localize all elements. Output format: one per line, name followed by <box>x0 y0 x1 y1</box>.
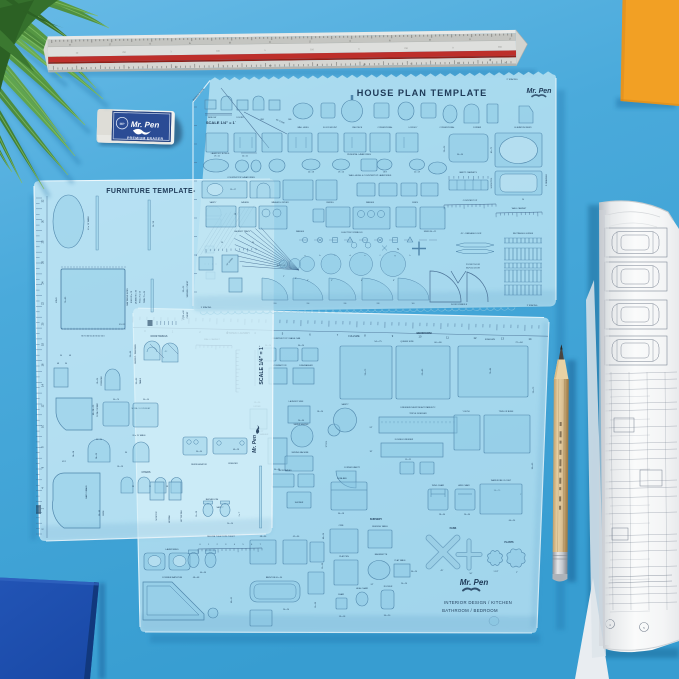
svg-text:F. SPALDING: F. SPALDING <box>545 174 548 187</box>
svg-text:Mr. Pen: Mr. Pen <box>252 435 258 453</box>
svg-text:28 x 30: 28 x 30 <box>439 514 445 516</box>
svg-text:SINKS 30 x 21: SINKS 30 x 21 <box>424 231 436 233</box>
svg-text:a: a <box>305 255 306 257</box>
svg-text:FREEZER: FREEZER <box>228 463 238 465</box>
svg-text:20 x 30: 20 x 30 <box>298 420 304 422</box>
svg-text:18 x 34: 18 x 34 <box>97 377 99 384</box>
svg-text:48 x 34 x 20: 48 x 34 x 20 <box>93 405 95 415</box>
svg-text:KING: KING <box>56 297 58 303</box>
svg-text:HOUSE PLAN TEMPLATE: HOUSE PLAN TEMPLATE <box>357 88 488 98</box>
svg-text:22 x 19: 22 x 19 <box>414 172 420 174</box>
svg-text:19 x 16: 19 x 16 <box>338 172 344 174</box>
svg-text:36 x 30: 36 x 30 <box>196 451 202 453</box>
svg-text:20 x 20: 20 x 20 <box>283 609 289 611</box>
svg-text:CHAIR: CHAIR <box>338 593 345 596</box>
svg-text:TRIPLE DRESSER: TRIPLE DRESSER <box>409 413 427 415</box>
svg-text:FULLSIZE: FULLSIZE <box>348 335 360 338</box>
svg-text:3: 3 <box>225 544 226 546</box>
svg-text:COUNTER TOP / BASE CAB: COUNTER TOP / BASE CAB <box>272 337 301 340</box>
svg-text:26 x 30: 26 x 30 <box>464 514 470 516</box>
svg-text:13 x 18: 13 x 18 <box>339 616 346 618</box>
svg-text:24": 24" <box>371 584 374 586</box>
svg-text:2: 2 <box>217 544 218 546</box>
svg-text:PLAY PEN: PLAY PEN <box>339 555 349 558</box>
svg-text:ARM CHAIR: ARM CHAIR <box>458 484 470 487</box>
svg-text:36 x 36: 36 x 36 <box>444 145 446 152</box>
svg-text:3" SPACING: 3" SPACING <box>527 304 538 307</box>
svg-text:SOFA CORNER: SOFA CORNER <box>96 403 99 417</box>
svg-text:WHIRLPOOL: WHIRLPOOL <box>491 178 493 189</box>
svg-text:15 x 21: 15 x 21 <box>405 459 411 461</box>
svg-text:2-6: 2-6 <box>344 303 347 305</box>
svg-text:44 x 36: 44 x 36 <box>200 572 206 574</box>
svg-text:COUNTER TOP: COUNTER TOP <box>463 200 478 202</box>
svg-text:ELEVATION VIEWS: ELEVATION VIEWS <box>515 126 533 129</box>
svg-text:CHEST: CHEST <box>187 311 189 319</box>
svg-text:24 x 24: 24 x 24 <box>73 451 75 457</box>
svg-text:9 10 12: 9 10 12 <box>119 324 125 326</box>
svg-text:30 x 20: 30 x 20 <box>384 615 391 617</box>
svg-text:WALL CABINET: WALL CABINET <box>512 207 527 210</box>
svg-text:18 x 28: 18 x 28 <box>117 466 123 468</box>
svg-text:45° - PASSAGE DOOR: 45° - PASSAGE DOOR <box>461 232 482 235</box>
svg-text:43 x 70 TABLE: 43 x 70 TABLE <box>87 215 90 229</box>
svg-text:KEYPAD: KEYPAD <box>168 515 171 523</box>
svg-text:WARDROBE CLOSET: WARDROBE CLOSET <box>491 479 512 482</box>
svg-text:DISHWASHER: DISHWASHER <box>299 364 313 367</box>
svg-text:LAVATORIES: LAVATORIES <box>165 548 179 551</box>
svg-text:DAVENS: DAVENS <box>241 201 249 204</box>
svg-text:NURSERY: NURSERY <box>370 518 382 521</box>
svg-text:RECTANGLE GUIDES: RECTANGLE GUIDES <box>513 232 534 235</box>
svg-text:72 x 84: 72 x 84 <box>490 367 492 374</box>
svg-text:54 x 75: 54 x 75 <box>374 341 382 343</box>
svg-text:h: h <box>410 255 411 257</box>
svg-text:(?)30 x 42: (?)30 x 42 <box>183 310 185 320</box>
svg-text:PLAY TABLE: PLAY TABLE <box>395 559 407 562</box>
svg-text:MONITOR: MONITOR <box>156 511 158 521</box>
svg-text:DOOR SYMBOLS: DOOR SYMBOLS <box>451 304 468 306</box>
svg-text:24 x 26: 24 x 26 <box>136 377 138 384</box>
svg-text:30 x 75: 30 x 75 <box>533 386 535 393</box>
svg-text:⚜: ⚜ <box>489 58 492 62</box>
svg-text:CONVENTIONAL: CONVENTIONAL <box>378 126 393 129</box>
svg-text:22 x 36: 22 x 36 <box>183 285 185 292</box>
svg-text:1 1/2": 1 1/2" <box>494 571 499 573</box>
svg-text:DELUXE TOILET STD.TOILET: DELUXE TOILET STD.TOILET <box>207 536 235 538</box>
svg-text:DOORS: DOORS <box>237 117 245 119</box>
svg-text:CONSOLE: CONSOLE <box>101 375 103 385</box>
svg-text:YOUTH: YOUTH <box>463 411 471 413</box>
svg-text:FLOOR MOUNT: FLOOR MOUNT <box>323 127 338 129</box>
svg-text:BATHROOM: BATHROOM <box>206 498 219 501</box>
svg-text:76 x 80: 76 x 80 <box>65 296 67 303</box>
svg-text:INTERIOR DESIGN / KITCHEN: INTERIOR DESIGN / KITCHEN <box>444 600 512 605</box>
svg-text:80 70 60 50 40 30: 80 70 60 50 40 30 20 10 0 <box>81 336 105 338</box>
svg-text:BASSINETTE: BASSINETTE <box>375 553 388 556</box>
svg-text:48 x 36: 48 x 36 <box>260 536 267 538</box>
svg-text:24 x 60: 24 x 60 <box>532 462 534 469</box>
svg-text:5: 5 <box>242 544 243 546</box>
svg-text:FANS: FANS <box>450 527 457 530</box>
svg-text:4: 4 <box>234 544 235 546</box>
svg-text:ELECTRIC SYMBOLS: ELECTRIC SYMBOLS <box>342 232 364 234</box>
svg-text:CORNER: CORNER <box>473 127 482 129</box>
svg-text:24: 24 <box>522 199 524 201</box>
svg-text:WALL-HUNG & COUNTERTOP LAVATOR: WALL-HUNG & COUNTERTOP LAVATORIES <box>349 174 392 177</box>
svg-text:48 x 26: 48 x 26 <box>323 533 325 539</box>
svg-text:72 x 84: 72 x 84 <box>515 342 523 344</box>
svg-text:48 x 48: 48 x 48 <box>193 577 200 579</box>
svg-text:FURNITURE TEMPLATE-: FURNITURE TEMPLATE- <box>106 188 196 195</box>
svg-text:POCKET DOOR: POCKET DOOR <box>466 264 481 266</box>
svg-text:DBL: DBL <box>288 119 292 121</box>
svg-text:30 x 60: 30 x 60 <box>99 510 101 516</box>
svg-text:60 x 80: 60 x 80 <box>434 342 442 344</box>
svg-text:VANITY: VANITY <box>210 201 217 204</box>
svg-text:ROCKER: ROCKER <box>384 586 393 588</box>
svg-text:STOOL: STOOL <box>326 441 328 447</box>
svg-text:CRIB: CRIB <box>339 525 344 527</box>
svg-text:BEDROOM: BEDROOM <box>416 331 432 335</box>
svg-text:FEEDING TABLE: FEEDING TABLE <box>372 525 388 528</box>
svg-text:3-0: 3-0 <box>412 303 415 305</box>
svg-text:WINDOW: WINDOW <box>208 117 217 119</box>
svg-text:SEWING MACHINE: SEWING MACHINE <box>292 451 310 454</box>
svg-text:SERVER / CHEST: SERVER / CHEST <box>187 280 189 297</box>
svg-text:RANGES: RANGES <box>366 201 375 204</box>
svg-text:6: 6 <box>251 544 252 546</box>
svg-text:24 x 20: 24 x 20 <box>96 453 98 459</box>
svg-text:45": 45" <box>441 570 444 572</box>
svg-text:BABY GRAND: BABY GRAND <box>85 485 88 499</box>
svg-text:30: 30 <box>235 213 237 215</box>
svg-text:WALL HUNG: WALL HUNG <box>297 126 309 129</box>
svg-text:56": 56" <box>470 573 473 575</box>
svg-text:c: c <box>335 255 336 257</box>
svg-text:30: 30 <box>252 242 254 244</box>
svg-text:HIGH CHAIR: HIGH CHAIR <box>356 587 368 590</box>
svg-text:24": 24" <box>370 427 373 429</box>
svg-text:23: 23 <box>132 486 134 488</box>
svg-text:60 x 32: 60 x 32 <box>231 597 233 603</box>
svg-text:REFRIGERATOR: REFRIGERATOR <box>191 463 207 466</box>
svg-text:KINGSIZE: KINGSIZE <box>485 339 496 341</box>
svg-text:24 x 21: 24 x 21 <box>242 156 248 158</box>
svg-text:DOOR SWINGS: DOOR SWINGS <box>151 336 168 338</box>
svg-text:WM: WM <box>260 119 264 121</box>
svg-text:42 x 36: 42 x 36 <box>293 536 300 538</box>
svg-text:SINKS: SINKS <box>412 202 418 204</box>
svg-text:3" SPACING: 3" SPACING <box>506 78 518 81</box>
svg-text:54 x 75: 54 x 75 <box>365 368 367 375</box>
svg-text:24: 24 <box>221 242 223 244</box>
svg-text:20 x 18: 20 x 18 <box>308 172 314 174</box>
svg-text:15 x 30: 15 x 30 <box>322 563 324 569</box>
svg-text:26 x 19 TABLE: 26 x 19 TABLE <box>132 434 146 437</box>
svg-text:FULL 75 x 54: FULL 75 x 54 <box>140 290 142 303</box>
svg-text:42 x 72: 42 x 72 <box>491 147 493 153</box>
svg-text:1: 1 <box>208 544 209 546</box>
svg-text:2-0: 2-0 <box>274 303 277 305</box>
svg-text:LAUNDRY TRAYS: LAUNDRY TRAYS <box>234 230 250 233</box>
svg-text:KING 80 x 78: KING 80 x 78 <box>131 290 133 303</box>
svg-text:S: S <box>397 247 399 251</box>
svg-text:b: b <box>320 255 321 257</box>
svg-text:48 x 28: 48 x 28 <box>233 449 239 451</box>
svg-text:34: 34 <box>60 355 62 357</box>
svg-text:34 x 64: 34 x 64 <box>130 350 132 357</box>
svg-text:g: g <box>395 255 396 257</box>
svg-text:18": 18" <box>370 451 373 453</box>
svg-text:TWIN 75 x 39: TWIN 75 x 39 <box>144 290 146 303</box>
svg-text:7: 7 <box>260 544 261 546</box>
svg-text:36 x 36: 36 x 36 <box>457 154 463 156</box>
svg-text:18: 18 <box>166 486 168 488</box>
svg-text:LOW BOY: LOW BOY <box>409 127 419 129</box>
svg-text:36 x 18: 36 x 18 <box>338 513 344 515</box>
svg-text:WING CHAIR: WING CHAIR <box>432 484 445 487</box>
svg-text:19 x 21: 19 x 21 <box>214 156 220 158</box>
svg-text:TABLE: TABLE <box>139 377 142 384</box>
svg-text:LETTER FILE: LETTER FILE <box>181 509 183 522</box>
svg-text:BI-FOLD DOOR: BI-FOLD DOOR <box>466 268 480 270</box>
svg-text:Mr. Pen: Mr. Pen <box>460 578 489 587</box>
svg-text:DESK: DESK <box>103 510 105 516</box>
svg-text:COUNTERTOP LAVATORIES: COUNTERTOP LAVATORIES <box>227 176 255 179</box>
svg-text:REFRIG: REFRIG <box>326 202 334 204</box>
svg-text:MATTRESS SIZES: MATTRESS SIZES <box>126 288 129 306</box>
svg-text:18 x 20: 18 x 20 <box>317 411 323 413</box>
svg-text:SOFA BED: SOFA BED <box>337 477 347 480</box>
svg-text:LAUNDRY SINK: LAUNDRY SINK <box>289 400 304 403</box>
svg-text:2 x 7´: 2 x 7´ <box>238 511 241 516</box>
svg-text:BUFFET / DRESSER: BUFFET / DRESSER <box>135 344 137 364</box>
svg-text:0: 0 <box>199 544 200 546</box>
svg-text:SCALE 1/4" = 1´: SCALE 1/4" = 1´ <box>206 120 237 125</box>
svg-text:CORNER VANITY: CORNER VANITY <box>344 466 361 469</box>
svg-text:BATHTUB 60 x 30: BATHTUB 60 x 30 <box>266 576 283 579</box>
svg-text:MICROWAVES: MICROWAVES <box>279 469 293 472</box>
svg-text:CORNER BATHTUB: CORNER BATHTUB <box>162 576 183 579</box>
svg-text:30 x 24: 30 x 24 <box>298 345 304 347</box>
svg-text:34: 34 <box>65 363 67 365</box>
svg-text:15 x 30: 15 x 30 <box>315 602 317 608</box>
svg-text:RANGES: RANGES <box>296 230 305 233</box>
svg-text:48: 48 <box>69 355 71 357</box>
svg-text:20 x 26: 20 x 26 <box>227 523 233 525</box>
svg-text:34 x 54: 34 x 54 <box>143 399 149 401</box>
svg-text:34 x 76: 34 x 76 <box>113 399 119 401</box>
svg-text:30 x 26: 30 x 26 <box>274 469 280 471</box>
svg-text:d: d <box>350 255 351 257</box>
svg-text:PEDESTAL LAVATORIES: PEDESTAL LAVATORIES <box>347 153 371 156</box>
svg-text:19 x 17: 19 x 17 <box>230 189 236 191</box>
svg-text:15 x 28: 15 x 28 <box>196 511 198 517</box>
svg-text:3´ SPACING: 3´ SPACING <box>201 306 212 309</box>
svg-text:Mr. Pen: Mr. Pen <box>527 88 552 95</box>
svg-text:TWIN OR BUNK: TWIN OR BUNK <box>499 411 514 413</box>
svg-text:CHAIRS: CHAIRS <box>141 471 150 474</box>
svg-text:36 x 20: 36 x 20 <box>411 571 417 573</box>
svg-text:SCALE 1/4" = 1´: SCALE 1/4" = 1´ <box>259 345 265 384</box>
svg-text:30 x 30: 30 x 30 <box>96 439 102 441</box>
svg-text:60 x 80: 60 x 80 <box>422 368 424 375</box>
svg-text:60 x 24: 60 x 24 <box>509 520 516 522</box>
svg-text:WASHER & DRYER: WASHER & DRYER <box>271 201 289 204</box>
svg-text:Mr. Pen: Mr. Pen <box>131 120 160 130</box>
svg-text:DOUBLE DRESSER: DOUBLE DRESSER <box>395 439 414 441</box>
svg-text:SHOWER: SHOWER <box>295 502 304 504</box>
svg-text:ONE PIECE: ONE PIECE <box>352 127 363 129</box>
svg-text:36 / 38: 36 / 38 <box>153 221 155 227</box>
svg-text:2-4: 2-4 <box>307 303 310 305</box>
svg-text:VANITY CABINETS: VANITY CABINETS <box>459 171 477 174</box>
svg-text:20 x 26: 20 x 26 <box>401 583 407 585</box>
svg-text:BATHROOM / BEDROOM: BATHROOM / BEDROOM <box>442 608 498 613</box>
svg-text:PLANTS: PLANTS <box>504 541 514 544</box>
svg-text:QUEEN SIZE: QUEEN SIZE <box>400 341 414 343</box>
svg-text:2-8: 2-8 <box>377 303 380 305</box>
svg-text:e: e <box>365 255 366 257</box>
svg-text:VANITY: VANITY <box>341 403 349 406</box>
svg-text:CONVENTIONAL: CONVENTIONAL <box>440 126 455 129</box>
svg-text:DRESSER/CHEST/NIGHTSTAND/ETC: DRESSER/CHEST/NIGHTSTAND/ETC <box>401 406 437 409</box>
svg-text:QUEEN 80 x 60: QUEEN 80 x 60 <box>135 289 137 304</box>
svg-text:COMPACTOR: COMPACTOR <box>274 364 287 367</box>
svg-text:48: 48 <box>57 363 59 365</box>
